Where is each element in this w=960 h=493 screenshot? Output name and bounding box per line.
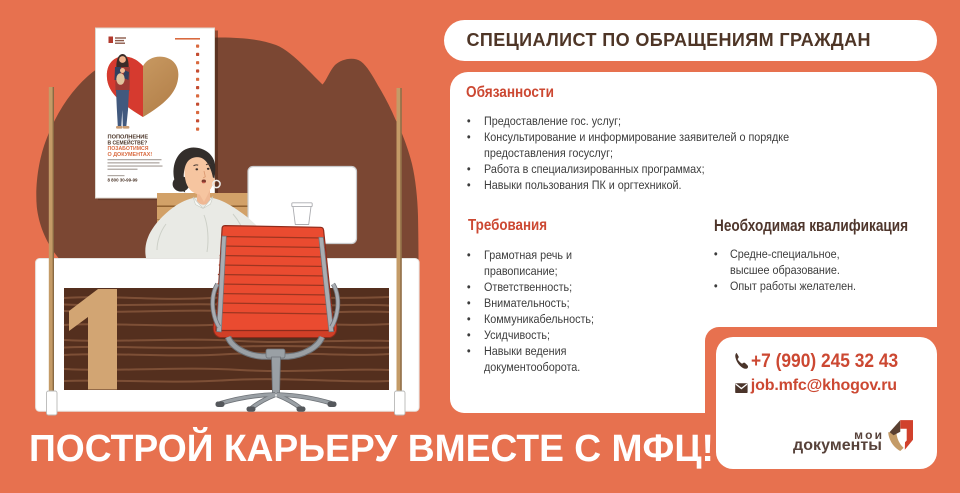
svg-text:В СЕМЕЙСТВЕ?: В СЕМЕЙСТВЕ? — [108, 138, 148, 146]
svg-text:8 800 30-99-99: 8 800 30-99-99 — [108, 178, 138, 183]
svg-text:О ДОКУМЕНТАХ!: О ДОКУМЕНТАХ! — [108, 152, 153, 158]
